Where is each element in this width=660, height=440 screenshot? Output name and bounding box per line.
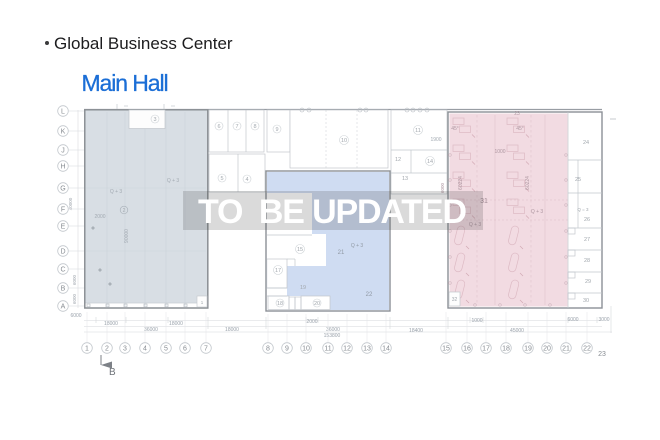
svg-text:J: J <box>61 148 65 155</box>
svg-text:3: 3 <box>153 117 156 123</box>
svg-text:29: 29 <box>585 279 591 285</box>
svg-text:17: 17 <box>482 346 490 353</box>
svg-text:10: 10 <box>302 346 310 353</box>
svg-text:18: 18 <box>502 346 510 353</box>
svg-text:4: 4 <box>245 177 248 183</box>
svg-text:90000: 90000 <box>124 229 130 243</box>
svg-text:6000: 6000 <box>567 317 578 323</box>
svg-text:10: 10 <box>341 138 347 144</box>
svg-text:19: 19 <box>300 285 306 291</box>
svg-text:G: G <box>60 186 65 193</box>
svg-text:1000: 1000 <box>471 318 482 324</box>
svg-text:7: 7 <box>204 346 208 353</box>
svg-text:40000: 40000 <box>68 197 73 210</box>
svg-text:2: 2 <box>123 208 126 214</box>
svg-text:17: 17 <box>275 268 281 274</box>
svg-text:5: 5 <box>164 346 168 353</box>
svg-text:18400: 18400 <box>409 328 423 334</box>
svg-text:E: E <box>61 224 66 231</box>
svg-text:18000: 18000 <box>104 321 118 327</box>
svg-text:11: 11 <box>324 346 331 353</box>
svg-text:45000: 45000 <box>510 328 524 334</box>
svg-text:30: 30 <box>583 298 589 304</box>
svg-text:Q + 3: Q + 3 <box>167 178 180 184</box>
svg-text:5: 5 <box>220 176 223 182</box>
svg-text:Q = 3: Q = 3 <box>577 207 589 212</box>
svg-text:1000: 1000 <box>494 149 505 155</box>
svg-text:24: 24 <box>583 140 589 146</box>
svg-text:23: 23 <box>514 111 520 117</box>
svg-text:60224: 60224 <box>525 176 531 190</box>
svg-text:9: 9 <box>275 127 278 133</box>
svg-text:60224: 60224 <box>458 176 464 190</box>
svg-text:11: 11 <box>415 128 421 134</box>
svg-text:K: K <box>61 129 66 136</box>
svg-text:A: A <box>61 304 66 311</box>
svg-text:20: 20 <box>543 346 551 353</box>
svg-text:Q + 3: Q + 3 <box>531 209 544 215</box>
svg-text:27: 27 <box>584 237 590 243</box>
svg-text:12: 12 <box>343 346 351 353</box>
svg-text:6: 6 <box>217 124 220 130</box>
svg-text:21: 21 <box>338 250 345 256</box>
svg-text:F: F <box>61 207 65 214</box>
svg-text:3: 3 <box>123 346 127 353</box>
svg-text:28: 28 <box>584 258 590 264</box>
svg-text:2: 2 <box>105 346 109 353</box>
svg-text:13: 13 <box>402 176 408 182</box>
svg-text:18000: 18000 <box>225 327 239 333</box>
svg-text:13: 13 <box>363 346 371 353</box>
svg-text:15: 15 <box>297 247 303 253</box>
svg-text:36000: 36000 <box>144 327 158 333</box>
svg-text:153800: 153800 <box>324 333 341 339</box>
svg-text:1: 1 <box>85 346 89 353</box>
svg-text:H: H <box>60 164 65 171</box>
svg-text:C: C <box>60 267 65 274</box>
svg-text:26: 26 <box>584 217 590 223</box>
svg-text:18: 18 <box>277 301 283 307</box>
svg-text:Q + 3: Q + 3 <box>351 243 364 249</box>
svg-text:TO BE UPDATED: TO BE UPDATED <box>198 193 467 231</box>
svg-text:16: 16 <box>463 346 471 353</box>
svg-text:3000: 3000 <box>598 317 609 323</box>
svg-text:2000: 2000 <box>94 214 105 220</box>
svg-text:21: 21 <box>562 346 570 353</box>
svg-text:D: D <box>60 249 65 256</box>
svg-text:20: 20 <box>314 301 320 307</box>
svg-text:18000: 18000 <box>169 321 183 327</box>
svg-text:8: 8 <box>266 346 270 353</box>
svg-text:6000: 6000 <box>72 274 77 285</box>
svg-text:15: 15 <box>442 346 450 353</box>
svg-text:1900: 1900 <box>430 137 441 143</box>
svg-text:6: 6 <box>183 346 187 353</box>
svg-text:B: B <box>109 367 116 378</box>
svg-text:L: L <box>61 109 65 116</box>
svg-text:7: 7 <box>235 124 238 130</box>
svg-text:12: 12 <box>395 157 401 163</box>
svg-text:2000: 2000 <box>306 319 317 325</box>
svg-text:23: 23 <box>598 351 606 358</box>
svg-text:4: 4 <box>143 346 147 353</box>
svg-text:19: 19 <box>524 346 532 353</box>
svg-text:14: 14 <box>427 159 433 165</box>
svg-text:8: 8 <box>253 124 256 130</box>
svg-text:22: 22 <box>366 292 373 298</box>
svg-text:22: 22 <box>583 346 591 353</box>
svg-text:Q + 3: Q + 3 <box>110 189 123 195</box>
svg-text:32: 32 <box>452 297 458 303</box>
svg-text:9: 9 <box>285 346 289 353</box>
svg-text:45°: 45° <box>451 126 459 132</box>
svg-text:45°: 45° <box>516 126 524 132</box>
svg-text:6000: 6000 <box>70 313 81 319</box>
svg-text:25: 25 <box>575 177 581 183</box>
svg-text:B: B <box>61 286 66 293</box>
svg-text:14: 14 <box>382 346 390 353</box>
svg-text:6000: 6000 <box>72 293 77 304</box>
